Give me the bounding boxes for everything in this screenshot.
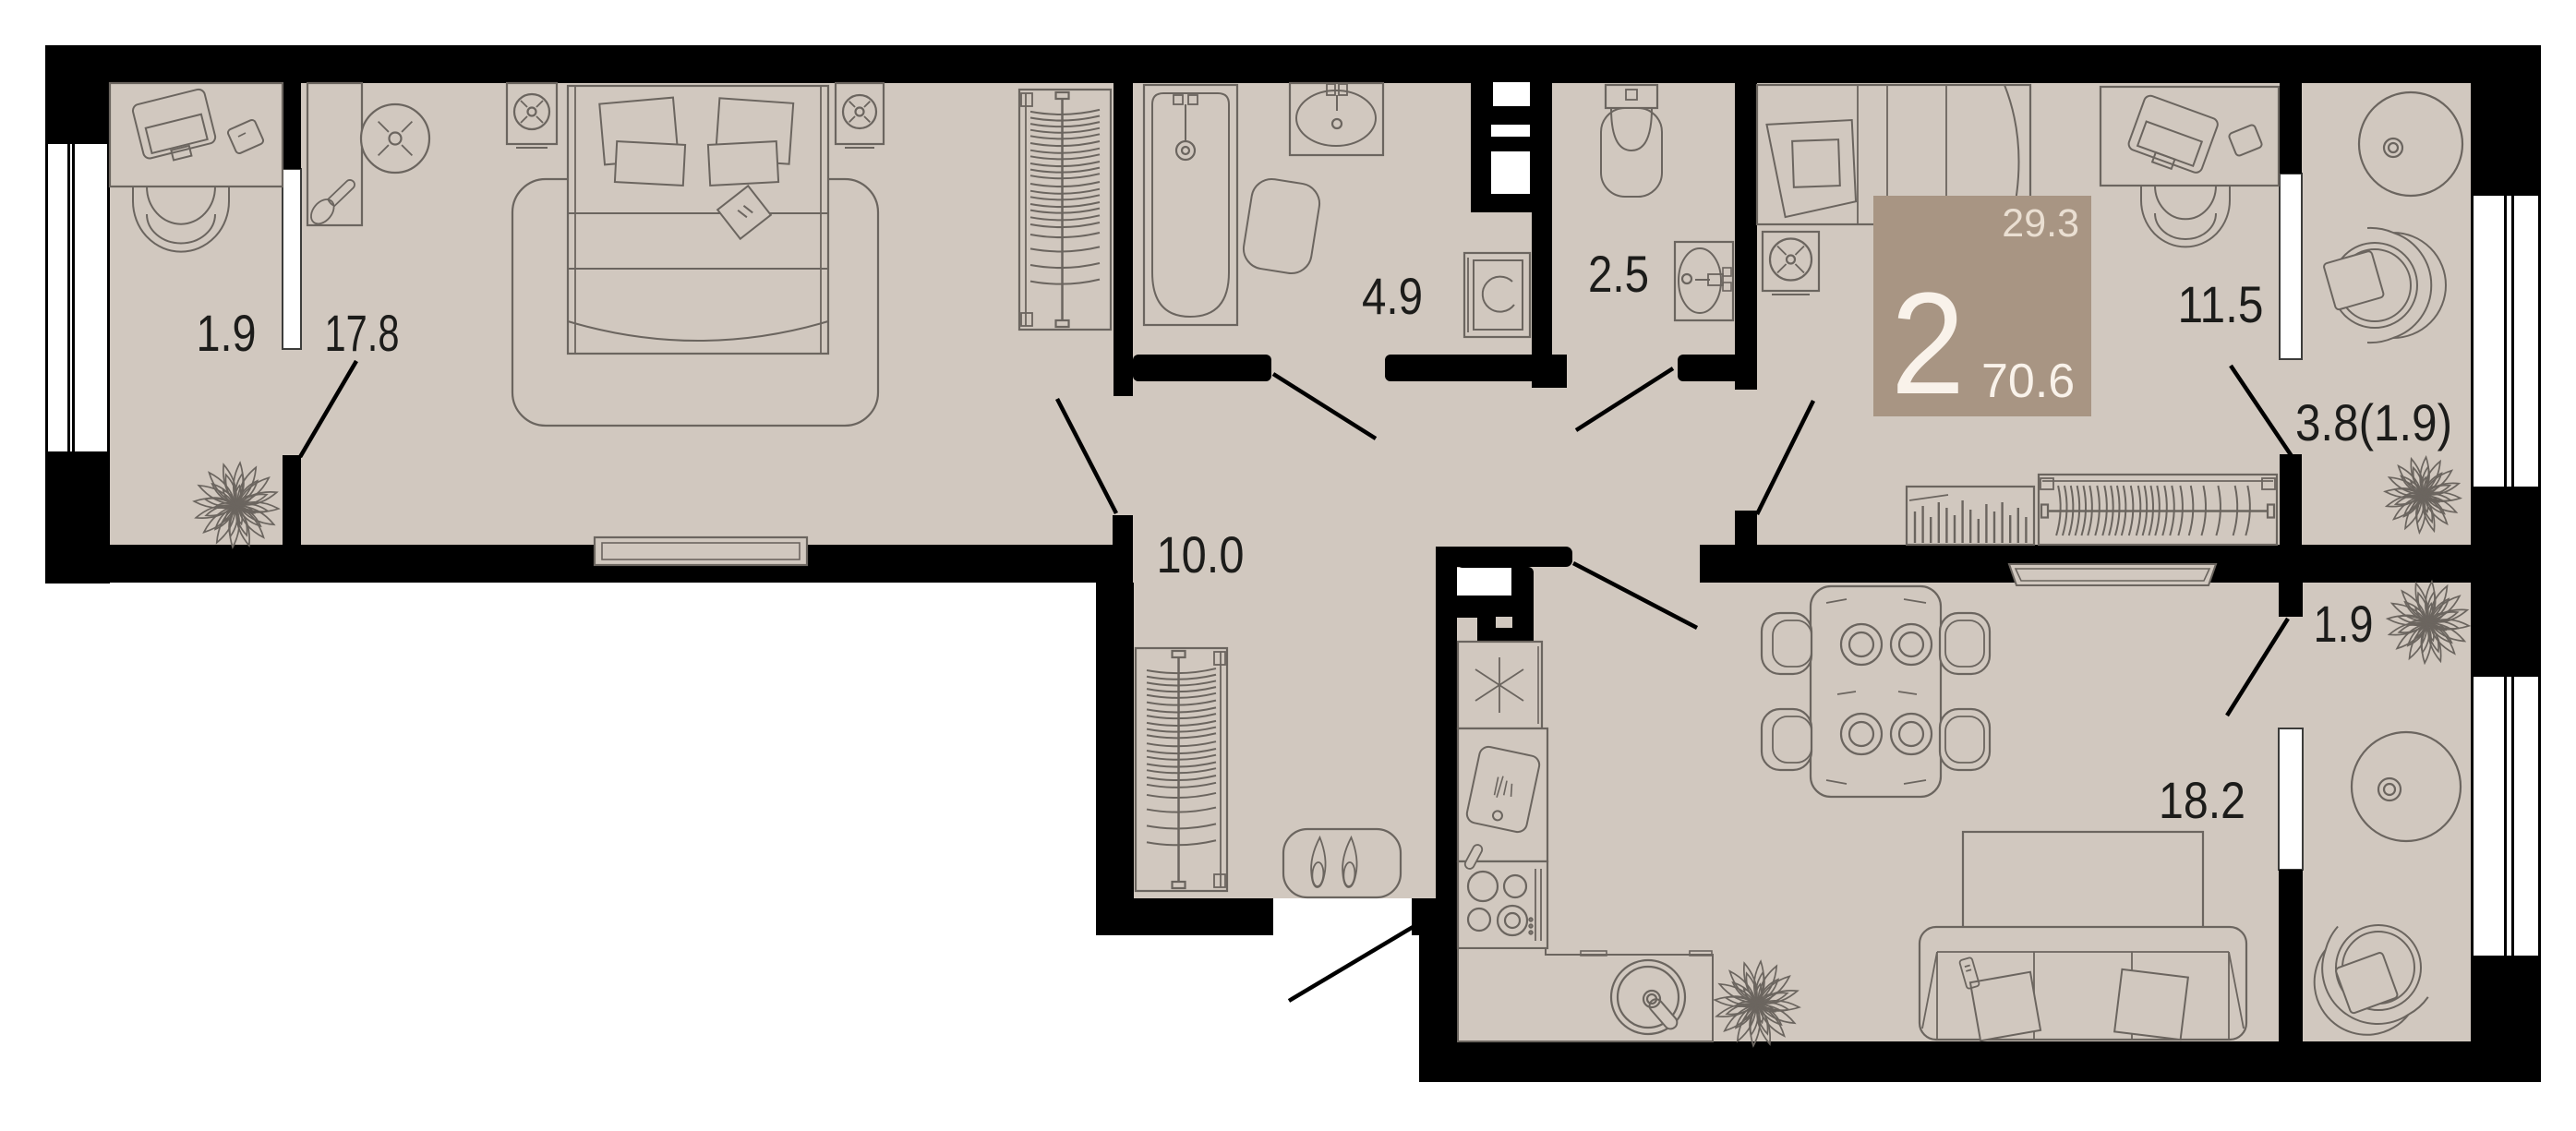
svg-text:11.5: 11.5 bbox=[2178, 275, 2264, 333]
svg-text:70.6: 70.6 bbox=[1981, 355, 2075, 408]
svg-text:2.5: 2.5 bbox=[1588, 245, 1649, 303]
svg-text:18.2: 18.2 bbox=[2159, 771, 2245, 829]
svg-text:17.8: 17.8 bbox=[325, 304, 400, 362]
svg-text:10.0: 10.0 bbox=[1157, 525, 1245, 584]
svg-text:4.9: 4.9 bbox=[1362, 267, 1423, 325]
svg-text:3.8(1.9): 3.8(1.9) bbox=[2295, 393, 2452, 451]
svg-text:29.3: 29.3 bbox=[2002, 201, 2079, 246]
svg-text:1.9: 1.9 bbox=[197, 304, 257, 362]
svg-text:1.9: 1.9 bbox=[2314, 595, 2374, 653]
svg-text:2: 2 bbox=[1891, 263, 1965, 425]
